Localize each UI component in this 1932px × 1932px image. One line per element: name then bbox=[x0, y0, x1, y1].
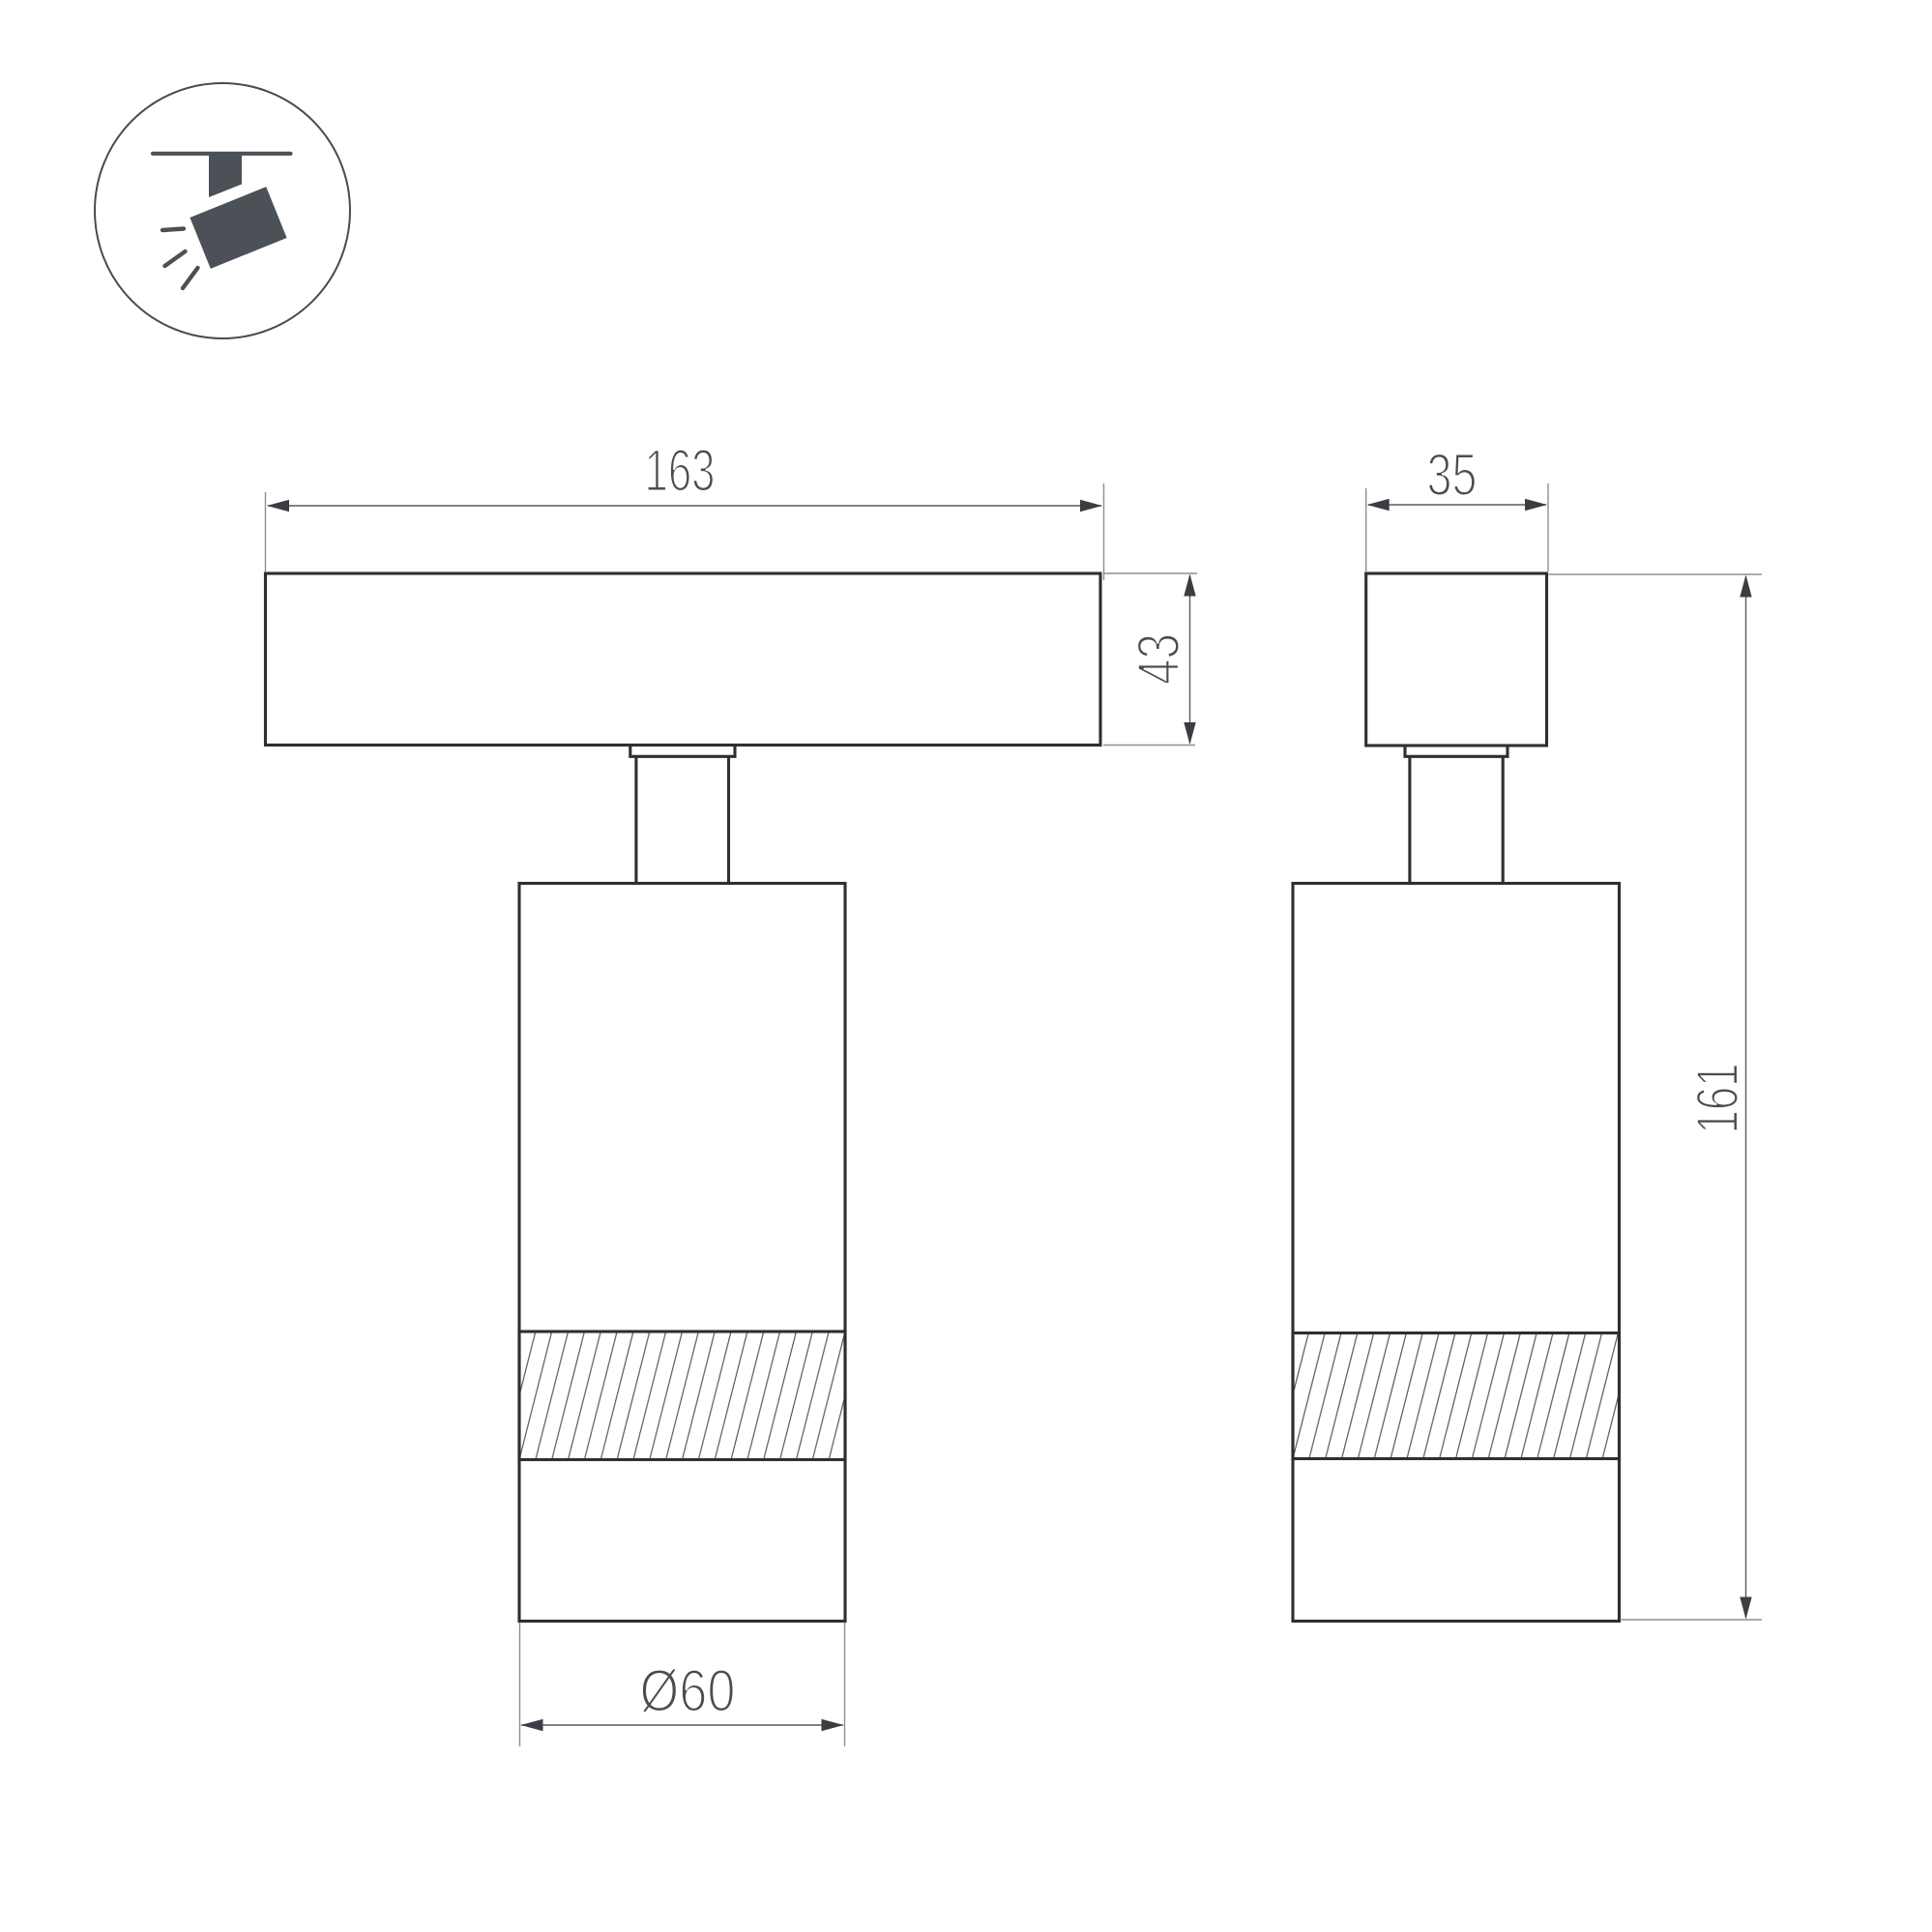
svg-text:35: 35 bbox=[1427, 442, 1478, 508]
svg-text:163: 163 bbox=[645, 438, 716, 504]
svg-text:Ø60: Ø60 bbox=[640, 1658, 736, 1724]
svg-text:161: 161 bbox=[1684, 1064, 1750, 1134]
svg-text:43: 43 bbox=[1126, 633, 1191, 685]
